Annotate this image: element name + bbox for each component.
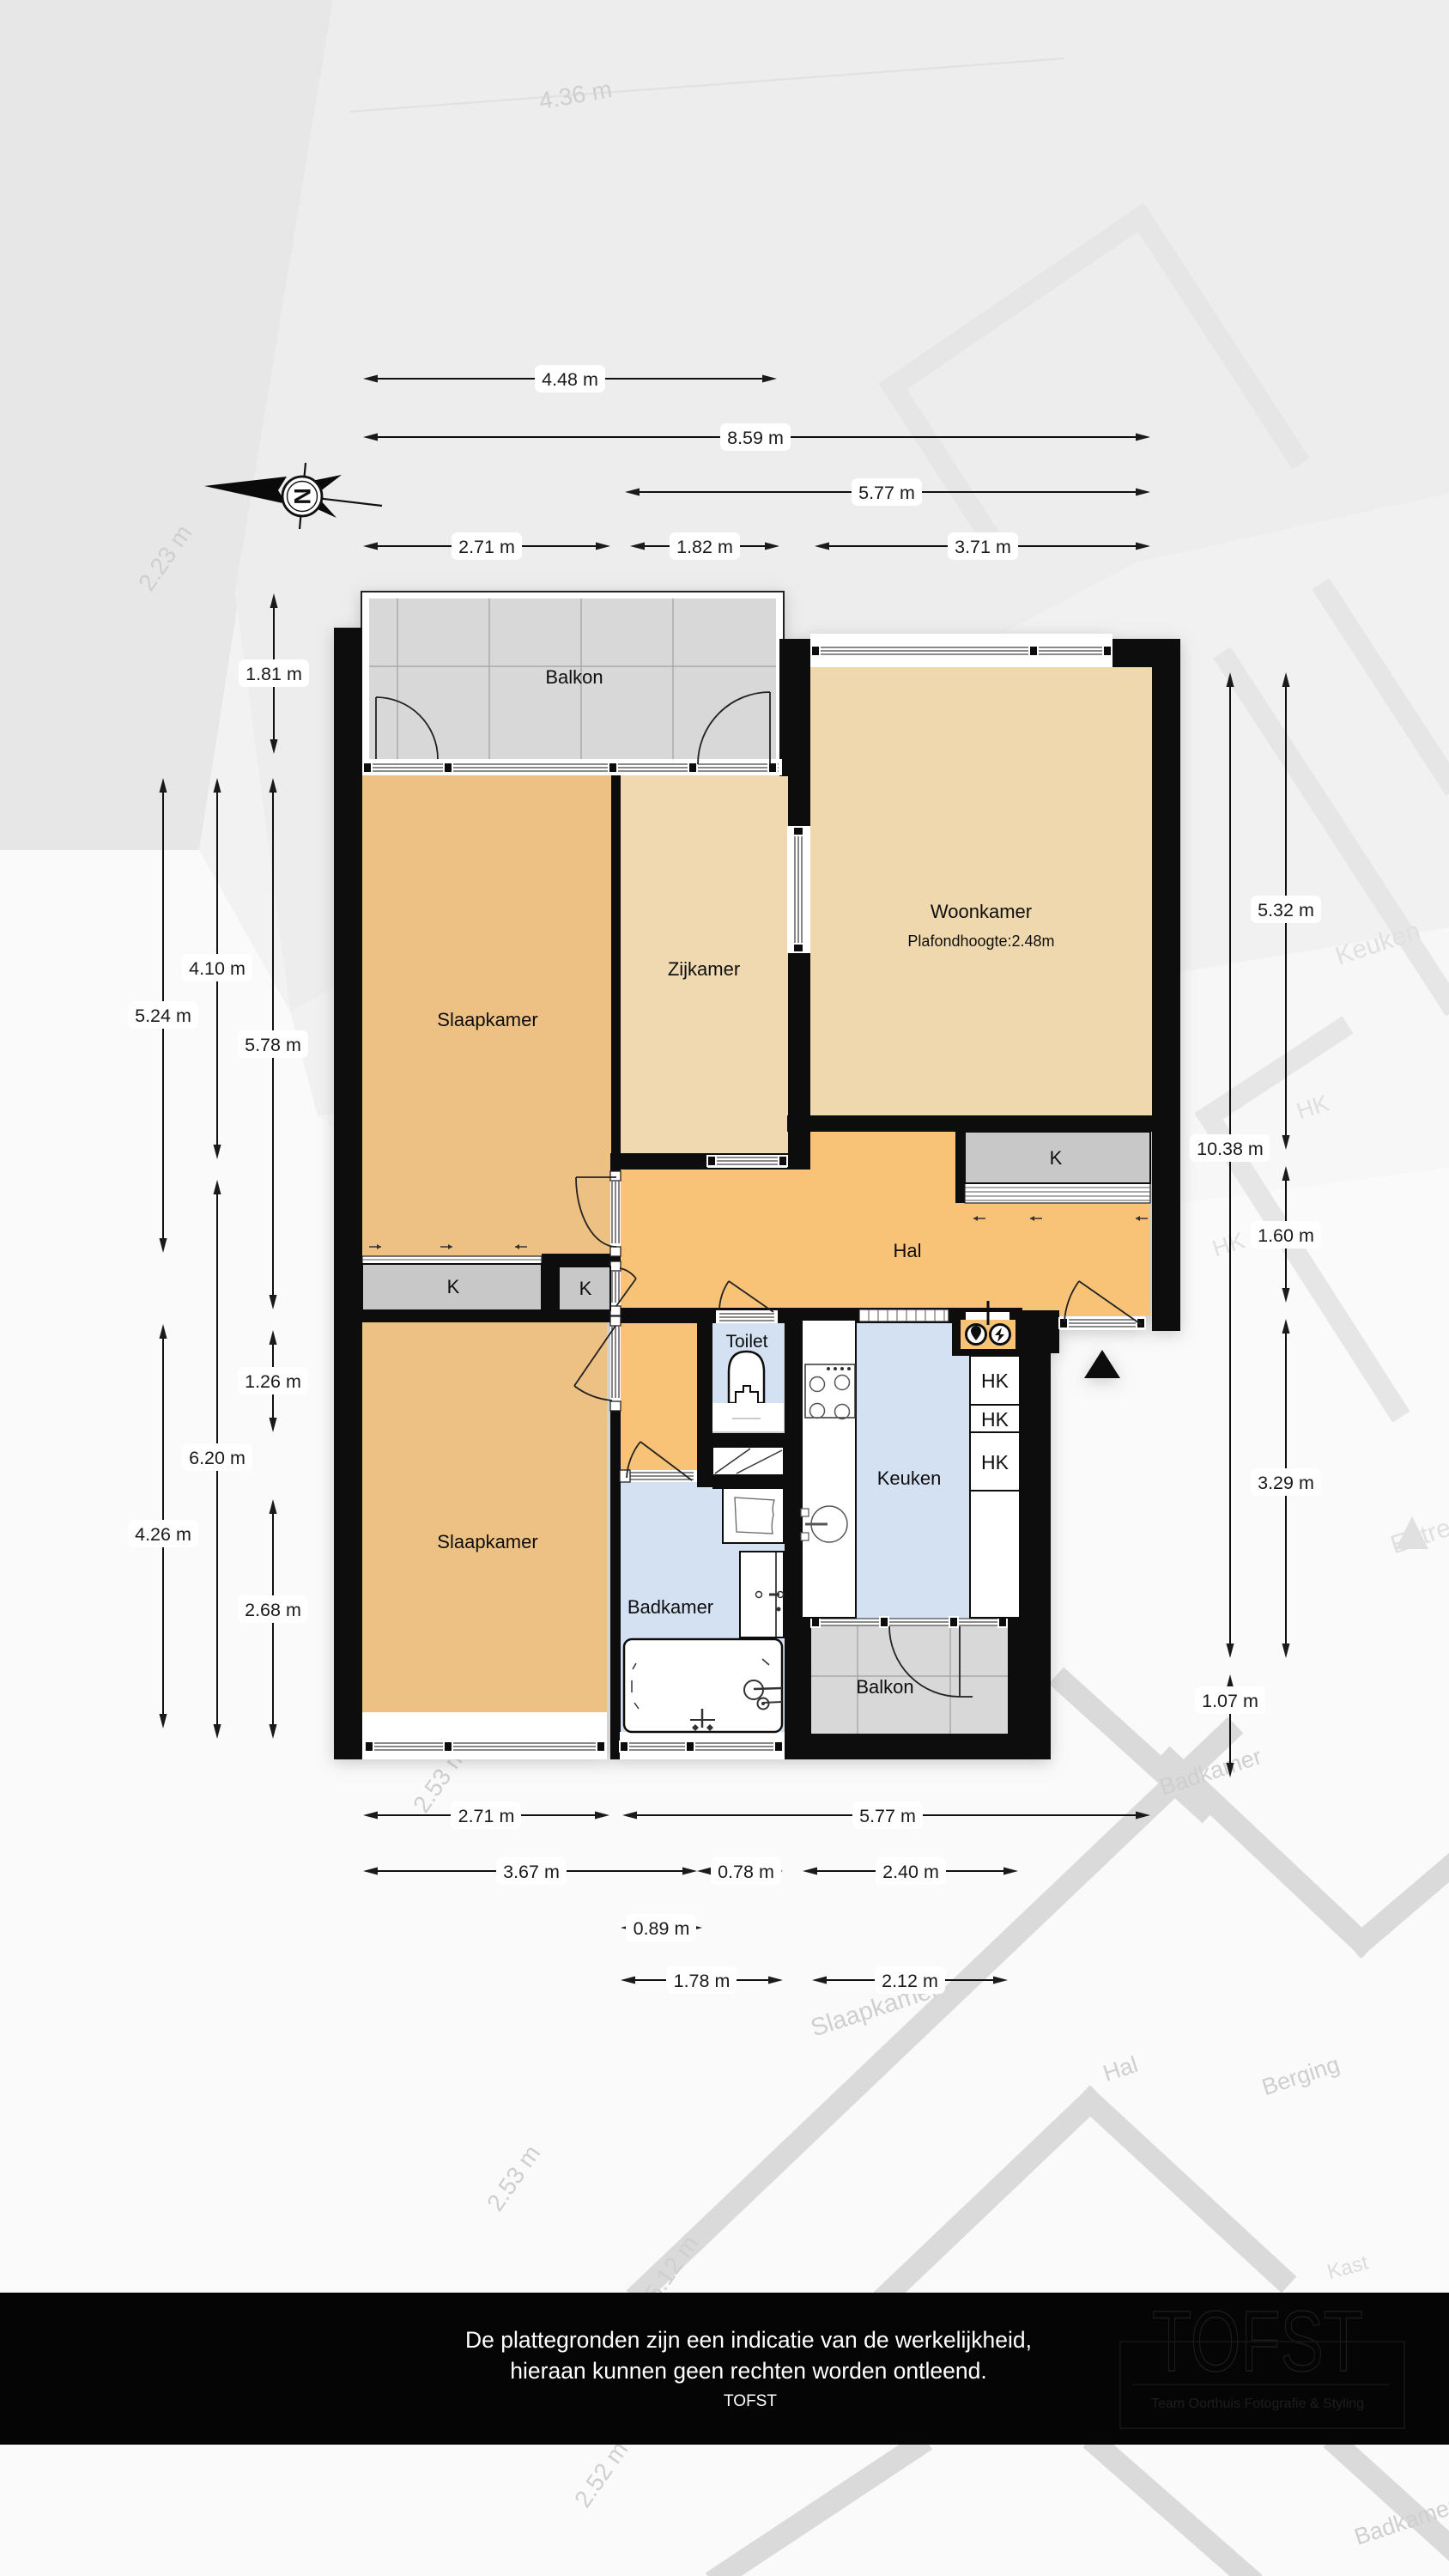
svg-text:5.78 m: 5.78 m [245, 1035, 301, 1055]
svg-text:2.40 m: 2.40 m [882, 1862, 939, 1882]
svg-text:1.81 m: 1.81 m [246, 664, 302, 684]
svg-text:Slaapkamer: Slaapkamer [437, 1009, 537, 1030]
svg-text:Keuken: Keuken [877, 1467, 942, 1489]
svg-text:2.71 m: 2.71 m [458, 537, 515, 557]
svg-text:4.26 m: 4.26 m [135, 1524, 191, 1545]
svg-text:TOFST: TOFST [724, 2392, 777, 2410]
svg-text:6.20 m: 6.20 m [189, 1448, 246, 1468]
svg-text:Woonkamer: Woonkamer [931, 901, 1032, 922]
svg-text:hieraan kunnen geen rechten wo: hieraan kunnen geen rechten worden ontle… [510, 2358, 986, 2384]
svg-text:4.48 m: 4.48 m [542, 369, 598, 390]
svg-text:3.71 m: 3.71 m [955, 537, 1011, 557]
svg-text:Toilet: Toilet [725, 1332, 767, 1352]
svg-text:1.26 m: 1.26 m [245, 1371, 301, 1392]
svg-text:10.38 m: 10.38 m [1197, 1139, 1264, 1159]
svg-text:1.60 m: 1.60 m [1258, 1225, 1314, 1246]
svg-text:5.32 m: 5.32 m [1258, 900, 1314, 920]
svg-text:2.12 m: 2.12 m [882, 1971, 938, 1991]
svg-text:2.71 m: 2.71 m [458, 1806, 515, 1826]
svg-text:1.82 m: 1.82 m [676, 537, 733, 557]
svg-text:HK: HK [981, 1451, 1009, 1473]
svg-text:Team Oorthuis Fotografie & Sty: Team Oorthuis Fotografie & Styling [1151, 2397, 1364, 2411]
svg-text:3.67 m: 3.67 m [503, 1862, 560, 1882]
svg-text:Zijkamer: Zijkamer [668, 958, 740, 980]
svg-text:Slaapkamer: Slaapkamer [437, 1531, 537, 1552]
svg-text:Badkamer: Badkamer [627, 1596, 713, 1618]
svg-text:HK: HK [981, 1408, 1009, 1431]
svg-text:Balkon: Balkon [545, 666, 603, 688]
svg-text:Hal: Hal [893, 1240, 921, 1261]
svg-text:Balkon: Balkon [856, 1676, 913, 1698]
svg-text:5.24 m: 5.24 m [135, 1005, 191, 1026]
svg-text:HK: HK [981, 1370, 1009, 1392]
svg-text:N: N [289, 488, 315, 505]
svg-text:2.68 m: 2.68 m [245, 1600, 301, 1620]
svg-text:4.10 m: 4.10 m [189, 958, 246, 979]
svg-text:De plattegronden zijn een indi: De plattegronden zijn een indicatie van … [465, 2327, 1032, 2353]
svg-text:K: K [1050, 1147, 1063, 1169]
svg-text:5.77 m: 5.77 m [859, 1806, 916, 1826]
svg-text:5.77 m: 5.77 m [858, 483, 915, 503]
svg-text:3.29 m: 3.29 m [1258, 1473, 1314, 1493]
svg-text:0.78 m: 0.78 m [718, 1862, 774, 1882]
svg-text:1.07 m: 1.07 m [1202, 1691, 1258, 1711]
svg-text:1.78 m: 1.78 m [674, 1971, 731, 1991]
svg-text:K: K [447, 1276, 460, 1297]
svg-text:K: K [579, 1278, 592, 1299]
svg-text:Plafondhoogte:2.48m: Plafondhoogte:2.48m [907, 933, 1054, 950]
svg-text:0.89 m: 0.89 m [634, 1918, 690, 1939]
svg-text:8.59 m: 8.59 m [727, 428, 784, 448]
